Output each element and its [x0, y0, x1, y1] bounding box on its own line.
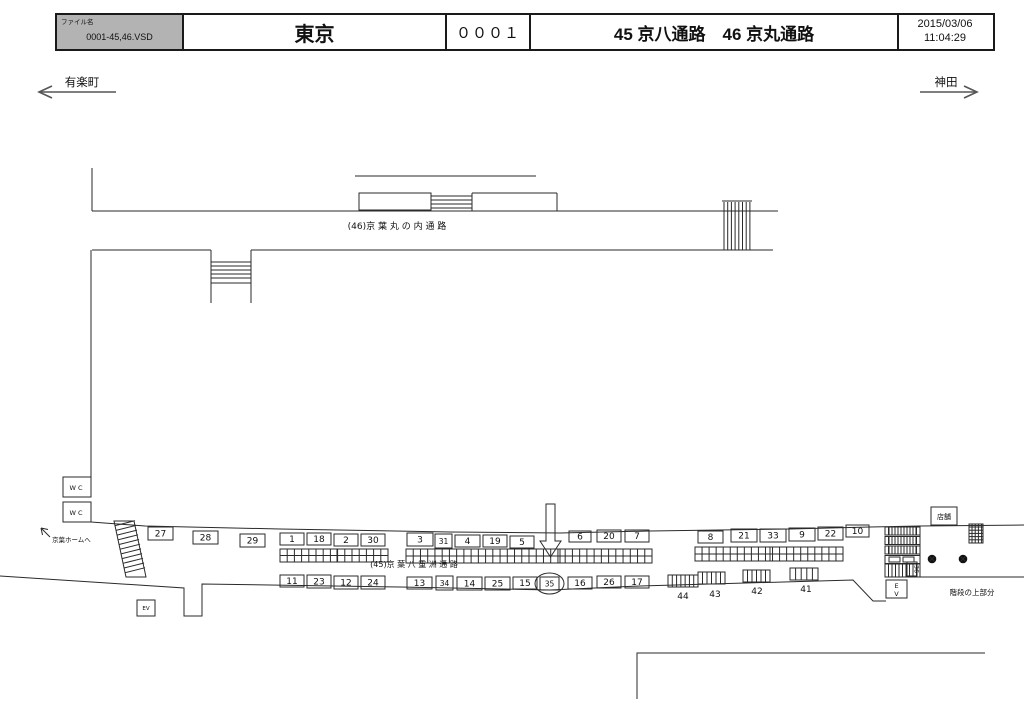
- ad-box-8-number: 8: [708, 533, 714, 543]
- floor-plan: (46)京 葉 丸 の 内 通 路 WC WC (45)京 葉 八 重 洲 通 …: [0, 0, 1024, 724]
- wc-label-1: WC: [70, 484, 85, 492]
- ad-box-29-number: 29: [247, 537, 259, 547]
- pillar-x-icons: [928, 555, 968, 564]
- ad-box-24-number: 24: [367, 579, 379, 589]
- ad-box-11-number: 11: [286, 577, 297, 587]
- pillar-group-42: 42: [743, 570, 770, 597]
- crosshatch-block: [969, 524, 983, 543]
- ad-box-6-number: 6: [577, 533, 583, 543]
- ad-box-19-number: 19: [489, 537, 501, 547]
- pillar-label-44: 44: [677, 592, 689, 602]
- pillar-group-43: 43: [698, 572, 725, 600]
- ad-box-27-number: 27: [155, 530, 166, 540]
- ad-box-18-number: 18: [313, 535, 325, 545]
- ad-box-36-number: 36: [913, 565, 921, 573]
- keiyo-home-arrow-icon: [41, 528, 50, 537]
- ad-box-15-number: 15: [519, 579, 530, 589]
- ad-box-25-number: 25: [492, 580, 503, 590]
- ad-box-23-number: 23: [313, 578, 324, 588]
- svg-text:E: E: [894, 582, 898, 590]
- ad-box-22-number: 22: [825, 530, 836, 540]
- corridor46-stairs-icon: [722, 201, 752, 250]
- corridor45-top-wall: [91, 522, 1024, 533]
- ad-box-3-number: 3: [417, 536, 423, 546]
- ad-box-13-number: 13: [414, 579, 425, 589]
- corridor46-box-right: [472, 193, 557, 211]
- ad-box-10-number: 10: [852, 527, 864, 537]
- corridor46-label: (46)京 葉 丸 の 内 通 路: [348, 220, 447, 232]
- ad-box-9-number: 9: [799, 531, 805, 541]
- ad-strips: [280, 547, 843, 563]
- corridor46-box-left: [359, 193, 431, 210]
- pillar-label-41: 41: [800, 585, 811, 595]
- corridor46-escalator-icon: [431, 196, 472, 208]
- corridor46-top-wall: [92, 168, 778, 211]
- elevator-right-label: EV: [894, 582, 899, 598]
- ad-box-5-number: 5: [519, 538, 525, 548]
- ad-strip-3: [695, 547, 843, 561]
- center-stairs-icon: [211, 250, 251, 303]
- bottom-right-wall: [637, 653, 985, 699]
- ad-box-30-number: 30: [367, 536, 379, 546]
- pillar-group-44: 44: [668, 575, 698, 602]
- ad-box-20-number: 20: [603, 532, 615, 542]
- ad-box-26-number: 26: [603, 578, 615, 588]
- elevator-left-label: EV: [142, 606, 149, 612]
- stairs-top-label: 階段の上部分: [950, 587, 995, 597]
- pillar-label-43: 43: [709, 590, 720, 600]
- ad-box-7-number: 7: [634, 532, 640, 542]
- ad-box-17-number: 17: [631, 578, 642, 588]
- ad-box-33-number: 33: [767, 532, 778, 542]
- corridor45-label: (45)京 葉 八 重 洲 通 路: [370, 559, 458, 569]
- left-escalator-icon: [114, 521, 146, 577]
- ad-box-2-number: 2: [343, 536, 349, 546]
- ad-box-31-number: 31: [439, 537, 449, 546]
- keiyo-home-label: 京葉ホームへ: [52, 535, 91, 544]
- ad-box-35-number: 35: [545, 580, 555, 589]
- station-map-sheet: ファイル名 0001-45,46.VSD 東京 ０００１ 45 京八通路 46 …: [0, 0, 1024, 724]
- ad-box-16-number: 16: [574, 579, 586, 589]
- ad-box-14-number: 14: [464, 580, 476, 590]
- svg-text:V: V: [894, 590, 899, 598]
- ad-box-4-number: 4: [465, 537, 471, 547]
- ad-box-34-number: 34: [440, 579, 450, 588]
- ad-box-28-number: 28: [200, 534, 212, 544]
- shop-label: 店舗: [937, 512, 951, 521]
- wc-label-2: WC: [70, 509, 85, 517]
- ad-box-21-number: 21: [738, 532, 749, 542]
- ad-box-12-number: 12: [340, 579, 351, 589]
- ad-box-1-number: 1: [289, 535, 295, 545]
- pillar-label-42: 42: [751, 587, 762, 597]
